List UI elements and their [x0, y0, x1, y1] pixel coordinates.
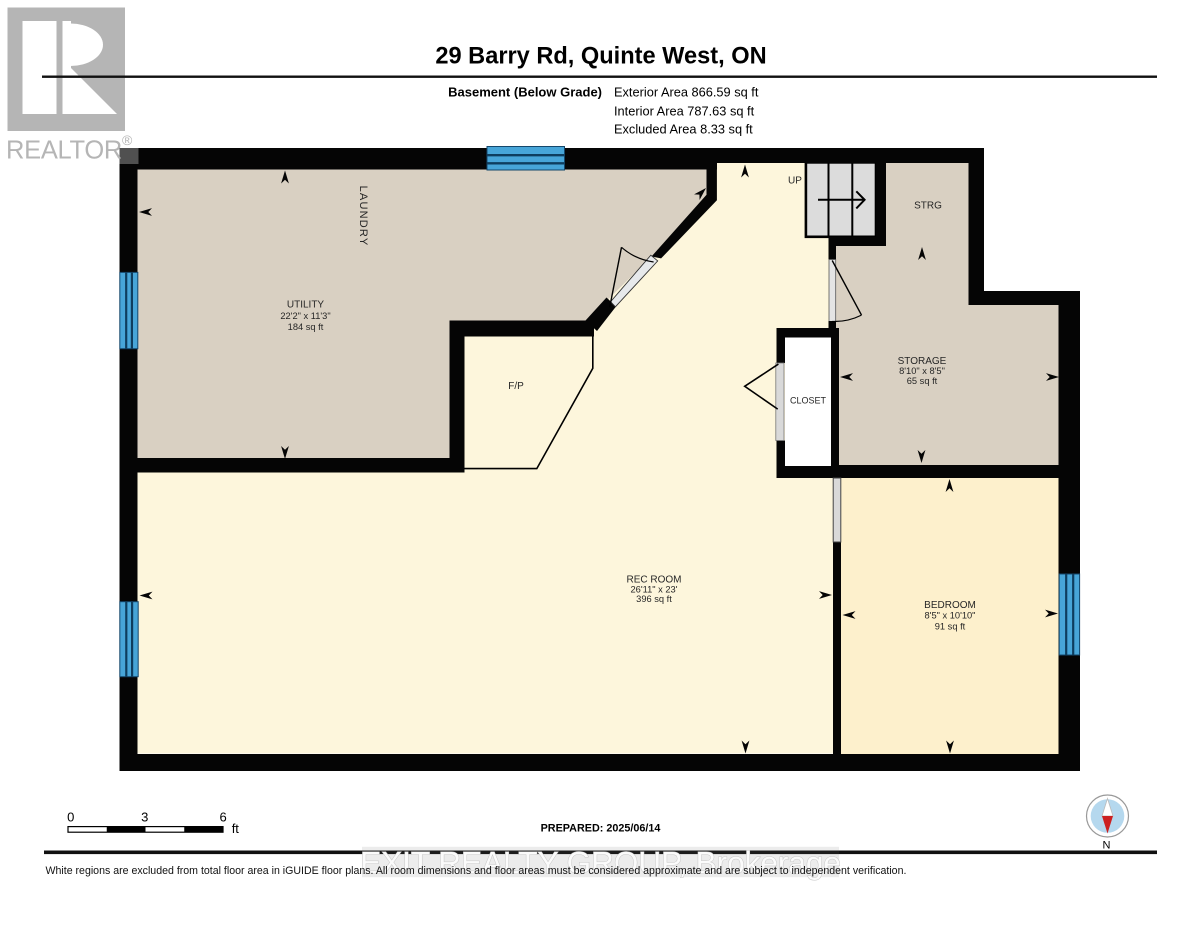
svg-text:91 sq ft: 91 sq ft — [935, 622, 966, 632]
svg-text:Exterior Area 866.59 sq ft: Exterior Area 866.59 sq ft — [614, 85, 759, 100]
svg-text:REALTOR: REALTOR — [6, 137, 122, 165]
svg-text:UTILITY: UTILITY — [287, 300, 325, 311]
svg-text:Basement (Below Grade): Basement (Below Grade) — [448, 85, 602, 100]
svg-text:0: 0 — [67, 809, 74, 824]
svg-text:CLOSET: CLOSET — [790, 396, 827, 406]
svg-text:Excluded Area 8.33 sq ft: Excluded Area 8.33 sq ft — [614, 122, 753, 137]
svg-text:22'2" x 11'3": 22'2" x 11'3" — [280, 311, 330, 321]
svg-text:LAUNDRY: LAUNDRY — [357, 186, 369, 247]
svg-text:UP: UP — [788, 176, 802, 187]
svg-text:3: 3 — [141, 809, 148, 824]
svg-text:ft: ft — [232, 821, 240, 836]
svg-text:8'5" x 10'10": 8'5" x 10'10" — [925, 611, 976, 621]
svg-text:PREPARED: 2025/06/14: PREPARED: 2025/06/14 — [541, 823, 661, 835]
svg-text:N: N — [1103, 840, 1111, 852]
svg-text:396 sq ft: 396 sq ft — [636, 594, 672, 604]
svg-text:Interior Area 787.63 sq ft: Interior Area 787.63 sq ft — [614, 103, 755, 118]
svg-text:26'11" x 23': 26'11" x 23' — [631, 585, 678, 595]
svg-text:65 sq ft: 65 sq ft — [907, 376, 938, 386]
svg-text:BEDROOM: BEDROOM — [924, 600, 976, 611]
svg-text:6: 6 — [219, 809, 226, 824]
svg-text:F/P: F/P — [508, 381, 524, 392]
svg-text:184 sq ft: 184 sq ft — [288, 322, 324, 332]
svg-text:®: ® — [122, 132, 133, 148]
svg-text:29 Barry Rd, Quinte West, ON: 29 Barry Rd, Quinte West, ON — [435, 44, 766, 70]
svg-text:STRG: STRG — [914, 201, 942, 212]
svg-text:8'10" x 8'5": 8'10" x 8'5" — [899, 366, 945, 376]
svg-text:White regions are excluded fro: White regions are excluded from total fl… — [46, 865, 907, 877]
